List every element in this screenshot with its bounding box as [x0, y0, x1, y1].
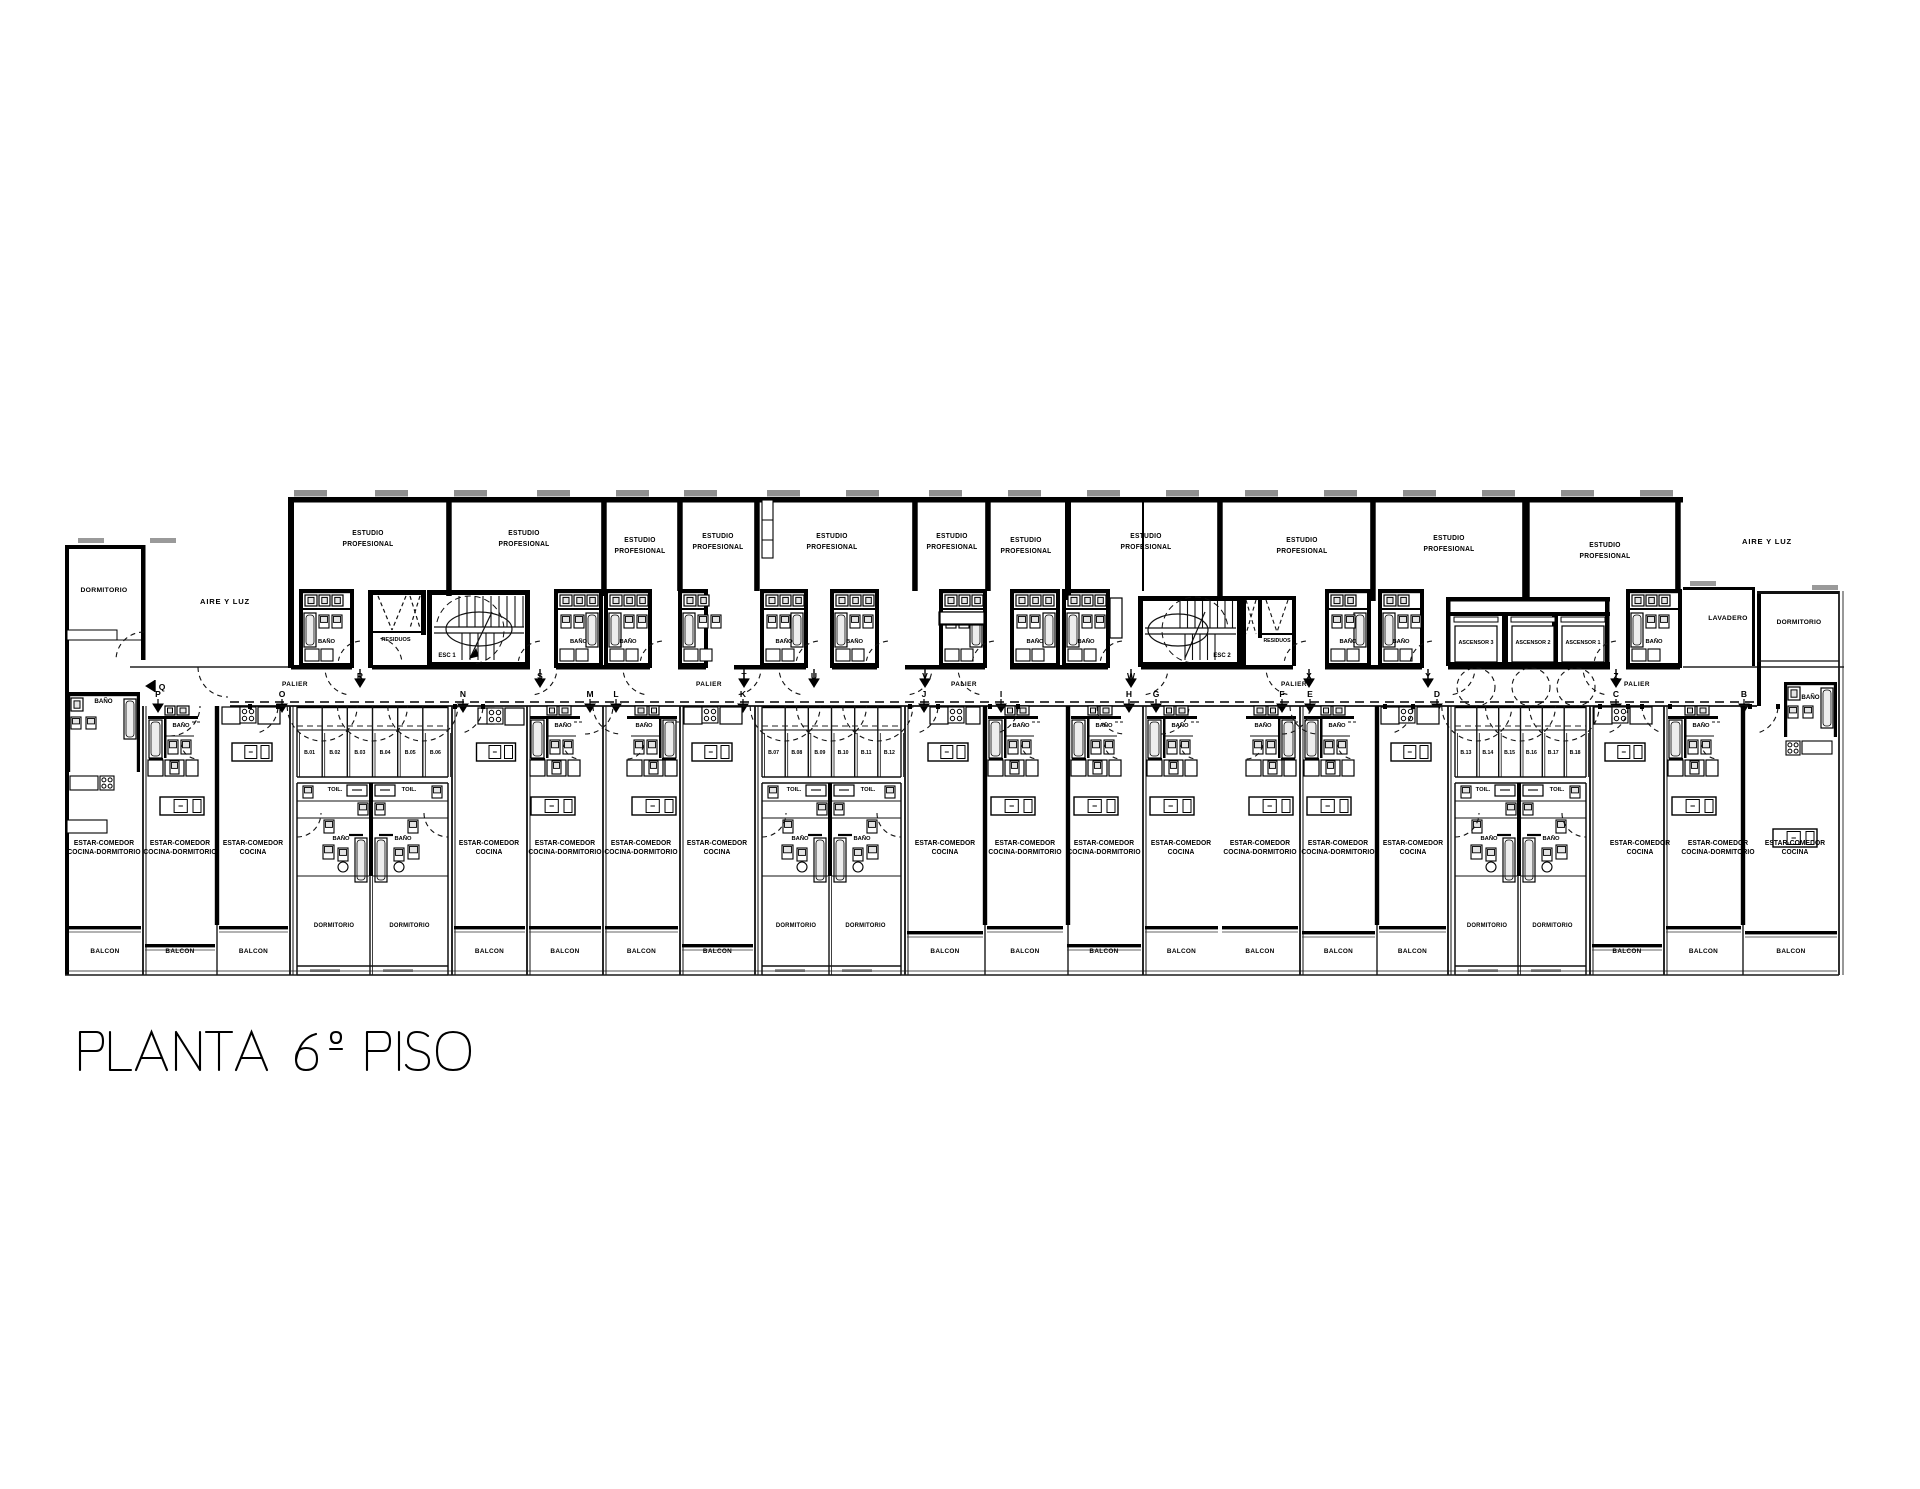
svg-text:ASCENSOR 3: ASCENSOR 3 [1458, 640, 1493, 646]
svg-text:COCINA: COCINA [932, 848, 959, 856]
svg-text:ESTAR-COMEDOR: ESTAR-COMEDOR [223, 839, 284, 847]
svg-text:Y: Y [1425, 671, 1431, 681]
svg-text:ESTAR-COMEDOR: ESTAR-COMEDOR [1308, 839, 1369, 847]
svg-text:ESTAR-COMEDOR: ESTAR-COMEDOR [1688, 839, 1749, 847]
svg-text:BAÑO: BAÑO [1026, 638, 1044, 645]
svg-text:BAÑO: BAÑO [570, 638, 588, 645]
svg-text:B.16: B.16 [1526, 750, 1537, 756]
svg-text:ESTUDIO: ESTUDIO [624, 537, 656, 544]
svg-text:BAÑO: BAÑO [1012, 722, 1030, 729]
svg-text:TOIL.: TOIL. [1550, 787, 1565, 793]
svg-text:DORMITORIO: DORMITORIO [314, 922, 354, 929]
svg-text:BAÑO: BAÑO [1392, 638, 1410, 645]
svg-text:ESTUDIO: ESTUDIO [936, 533, 968, 540]
svg-text:H: H [1126, 689, 1132, 699]
svg-text:BAÑO: BAÑO [1339, 638, 1357, 645]
svg-text:BAÑO: BAÑO [791, 835, 809, 842]
svg-text:BAÑO: BAÑO [394, 835, 412, 842]
svg-text:BALCON: BALCON [627, 948, 656, 955]
svg-text:BAÑO: BAÑO [635, 722, 653, 729]
svg-text:LAVADERO: LAVADERO [1708, 615, 1748, 622]
svg-text:ESTUDIO: ESTUDIO [1130, 533, 1162, 540]
svg-text:BAÑO: BAÑO [1645, 638, 1663, 645]
svg-text:BAÑO: BAÑO [554, 722, 572, 729]
svg-text:ESTAR-COMEDOR: ESTAR-COMEDOR [687, 839, 748, 847]
svg-text:BAÑO: BAÑO [846, 638, 864, 645]
svg-text:B: B [1741, 689, 1747, 699]
svg-text:B.04: B.04 [380, 750, 391, 756]
svg-text:W: W [1127, 671, 1136, 681]
svg-text:PROFESIONAL: PROFESIONAL [693, 544, 744, 551]
svg-text:L: L [613, 689, 618, 699]
svg-text:P: P [155, 689, 161, 699]
svg-text:BALCON: BALCON [1167, 948, 1196, 955]
svg-text:ESTAR-COMEDOR: ESTAR-COMEDOR [1383, 839, 1444, 847]
svg-text:BALCON: BALCON [1398, 948, 1427, 955]
svg-text:BAÑO: BAÑO [1542, 835, 1560, 842]
svg-text:B.14: B.14 [1482, 750, 1493, 756]
svg-text:COCINA-DORMITORIO: COCINA-DORMITORIO [528, 848, 602, 856]
svg-text:TOIL.: TOIL. [1476, 787, 1491, 793]
svg-text:BALCON: BALCON [475, 948, 504, 955]
svg-text:B.17: B.17 [1548, 750, 1559, 756]
svg-text:ESTAR-COMEDOR: ESTAR-COMEDOR [150, 839, 211, 847]
svg-text:PROFESIONAL: PROFESIONAL [1424, 546, 1475, 553]
svg-text:ESTAR-COMEDOR: ESTAR-COMEDOR [535, 839, 596, 847]
svg-text:COCINA-DORMITORIO: COCINA-DORMITORIO [988, 848, 1062, 856]
svg-text:B.07: B.07 [768, 750, 779, 756]
svg-text:PROFESIONAL: PROFESIONAL [1001, 548, 1052, 555]
svg-text:ESTAR-COMEDOR: ESTAR-COMEDOR [995, 839, 1056, 847]
svg-text:DORMITORIO: DORMITORIO [1777, 619, 1822, 626]
svg-text:COCINA-DORMITORIO: COCINA-DORMITORIO [1681, 848, 1755, 856]
svg-text:BALCON: BALCON [1245, 948, 1274, 955]
svg-text:PALIER: PALIER [282, 681, 308, 688]
svg-text:COCINA: COCINA [1400, 848, 1427, 856]
svg-text:PALIER: PALIER [696, 681, 722, 688]
svg-text:B.08: B.08 [791, 750, 802, 756]
svg-text:BAÑO: BAÑO [172, 722, 190, 729]
svg-text:PROFESIONAL: PROFESIONAL [1121, 544, 1172, 551]
svg-text:G: G [1153, 689, 1160, 699]
svg-text:B.12: B.12 [884, 750, 895, 756]
svg-text:PROFESIONAL: PROFESIONAL [1277, 548, 1328, 555]
svg-text:COCINA-DORMITORIO: COCINA-DORMITORIO [1301, 848, 1375, 856]
svg-text:V: V [922, 671, 928, 681]
svg-text:ESTUDIO: ESTUDIO [1010, 537, 1042, 544]
svg-text:BAÑO: BAÑO [775, 638, 793, 645]
svg-text:B.13: B.13 [1460, 750, 1471, 756]
svg-text:RESIDUOS: RESIDUOS [381, 637, 410, 643]
svg-text:BAÑO: BAÑO [1692, 722, 1710, 729]
svg-text:BALCON: BALCON [1089, 948, 1118, 955]
svg-text:BALCON: BALCON [90, 948, 119, 955]
svg-text:BALCON: BALCON [703, 948, 732, 955]
svg-text:PALIER: PALIER [1624, 681, 1650, 688]
svg-text:B.06: B.06 [430, 750, 441, 756]
svg-text:ESTAR-COMEDOR: ESTAR-COMEDOR [74, 839, 135, 847]
svg-text:B.02: B.02 [329, 750, 340, 756]
svg-text:BALCON: BALCON [1010, 948, 1039, 955]
svg-text:DORMITORIO: DORMITORIO [80, 587, 127, 594]
svg-text:B.03: B.03 [354, 750, 365, 756]
svg-text:BAÑO: BAÑO [1328, 722, 1346, 729]
svg-text:BALCON: BALCON [1612, 948, 1641, 955]
svg-text:BALCON: BALCON [239, 948, 268, 955]
svg-text:COCINA: COCINA [476, 848, 503, 856]
svg-text:COCINA-DORMITORIO: COCINA-DORMITORIO [1223, 848, 1297, 856]
svg-text:Z: Z [1613, 671, 1618, 681]
svg-text:U: U [811, 671, 817, 681]
svg-text:BALCON: BALCON [1776, 948, 1805, 955]
svg-text:ESTAR-COMEDOR: ESTAR-COMEDOR [1610, 839, 1671, 847]
svg-text:PROFESIONAL: PROFESIONAL [927, 544, 978, 551]
svg-text:ESTAR-COMEDOR: ESTAR-COMEDOR [1074, 839, 1135, 847]
svg-text:BALCON: BALCON [1689, 948, 1718, 955]
svg-text:BALCON: BALCON [165, 948, 194, 955]
svg-text:ESTUDIO: ESTUDIO [352, 530, 384, 537]
svg-text:COCINA: COCINA [704, 848, 731, 856]
svg-text:B.18: B.18 [1570, 750, 1581, 756]
svg-text:PROFESIONAL: PROFESIONAL [343, 541, 394, 548]
svg-text:BAÑO: BAÑO [1077, 638, 1095, 645]
svg-text:PALIER: PALIER [951, 681, 977, 688]
svg-text:ASCENSOR 1: ASCENSOR 1 [1565, 640, 1600, 646]
svg-text:PROFESIONAL: PROFESIONAL [807, 544, 858, 551]
svg-text:F: F [1279, 689, 1284, 699]
svg-text:DORMITORIO: DORMITORIO [1467, 922, 1507, 929]
svg-text:BAÑO: BAÑO [1254, 722, 1272, 729]
svg-text:ESC 2: ESC 2 [1213, 653, 1231, 659]
svg-text:AIRE Y LUZ: AIRE Y LUZ [200, 597, 250, 606]
svg-text:B.15: B.15 [1504, 750, 1515, 756]
svg-text:B.05: B.05 [405, 750, 416, 756]
svg-text:BAÑO: BAÑO [94, 698, 112, 705]
svg-text:ESTUDIO: ESTUDIO [1589, 542, 1621, 549]
svg-text:B.10: B.10 [838, 750, 849, 756]
svg-text:DORMITORIO: DORMITORIO [776, 922, 816, 929]
svg-text:DORMITORIO: DORMITORIO [389, 922, 429, 929]
svg-text:COCINA: COCINA [1168, 848, 1195, 856]
svg-text:BAÑO: BAÑO [332, 835, 350, 842]
svg-text:COCINA: COCINA [1782, 848, 1809, 856]
svg-text:COCINA-DORMITORIO: COCINA-DORMITORIO [143, 848, 217, 856]
svg-text:ESTAR-COMEDOR: ESTAR-COMEDOR [1151, 839, 1212, 847]
svg-text:ESTAR-COMEDOR: ESTAR-COMEDOR [915, 839, 976, 847]
svg-text:ESTAR-COMEDOR: ESTAR-COMEDOR [1765, 839, 1826, 847]
svg-text:B.01: B.01 [304, 750, 315, 756]
svg-text:COCINA-DORMITORIO: COCINA-DORMITORIO [1067, 848, 1141, 856]
svg-text:PROFESIONAL: PROFESIONAL [615, 548, 666, 555]
svg-text:PALIER: PALIER [1281, 681, 1307, 688]
svg-text:TOIL.: TOIL. [402, 787, 417, 793]
svg-text:RESIDUOS: RESIDUOS [1263, 638, 1291, 644]
svg-text:BAÑO: BAÑO [853, 835, 871, 842]
svg-text:COCINA: COCINA [1627, 848, 1654, 856]
svg-text:DORMITORIO: DORMITORIO [1532, 922, 1572, 929]
svg-text:PROFESIONAL: PROFESIONAL [1580, 553, 1631, 560]
svg-text:ESTAR-COMEDOR: ESTAR-COMEDOR [611, 839, 672, 847]
svg-text:COCINA-DORMITORIO: COCINA-DORMITORIO [67, 848, 141, 856]
svg-text:ESTAR-COMEDOR: ESTAR-COMEDOR [459, 839, 520, 847]
svg-text:ESTUDIO: ESTUDIO [1286, 537, 1318, 544]
svg-text:ESTUDIO: ESTUDIO [1433, 535, 1465, 542]
svg-text:K: K [740, 689, 747, 699]
svg-text:S: S [537, 671, 543, 681]
svg-text:TOIL.: TOIL. [861, 787, 876, 793]
svg-text:J: J [922, 689, 927, 699]
svg-text:E: E [1307, 689, 1313, 699]
svg-text:BALCON: BALCON [550, 948, 579, 955]
svg-text:ESTUDIO: ESTUDIO [702, 533, 734, 540]
svg-text:R: R [357, 671, 363, 681]
svg-text:T: T [741, 671, 747, 681]
svg-text:DORMITORIO: DORMITORIO [845, 922, 885, 929]
svg-text:I: I [1000, 689, 1002, 699]
svg-text:PROFESIONAL: PROFESIONAL [499, 541, 550, 548]
svg-text:B.09: B.09 [814, 750, 825, 756]
svg-text:AIRE Y LUZ: AIRE Y LUZ [1742, 537, 1792, 546]
svg-text:BALCON: BALCON [1324, 948, 1353, 955]
svg-text:BALCON: BALCON [930, 948, 959, 955]
svg-text:TOIL.: TOIL. [787, 787, 802, 793]
svg-text:COCINA: COCINA [240, 848, 267, 856]
svg-text:M: M [586, 689, 593, 699]
svg-text:COCINA-DORMITORIO: COCINA-DORMITORIO [604, 848, 678, 856]
svg-text:ESTAR-COMEDOR: ESTAR-COMEDOR [1230, 839, 1291, 847]
svg-text:BAÑO: BAÑO [1801, 694, 1819, 701]
svg-text:ESTUDIO: ESTUDIO [816, 533, 848, 540]
svg-text:ESC 1: ESC 1 [438, 653, 456, 659]
svg-text:BAÑO: BAÑO [1480, 835, 1498, 842]
svg-text:ESTUDIO: ESTUDIO [508, 530, 540, 537]
svg-text:B.11: B.11 [861, 750, 872, 756]
svg-text:C: C [1613, 689, 1619, 699]
svg-text:BAÑO: BAÑO [318, 638, 336, 645]
svg-text:BAÑO: BAÑO [619, 638, 637, 645]
svg-text:BAÑO: BAÑO [1171, 722, 1189, 729]
svg-text:ASCENSOR 2: ASCENSOR 2 [1515, 640, 1550, 646]
svg-text:O: O [279, 689, 286, 699]
svg-text:TOIL.: TOIL. [328, 787, 343, 793]
svg-text:D: D [1434, 689, 1440, 699]
svg-text:N: N [460, 689, 466, 699]
svg-text:X: X [1306, 671, 1312, 681]
